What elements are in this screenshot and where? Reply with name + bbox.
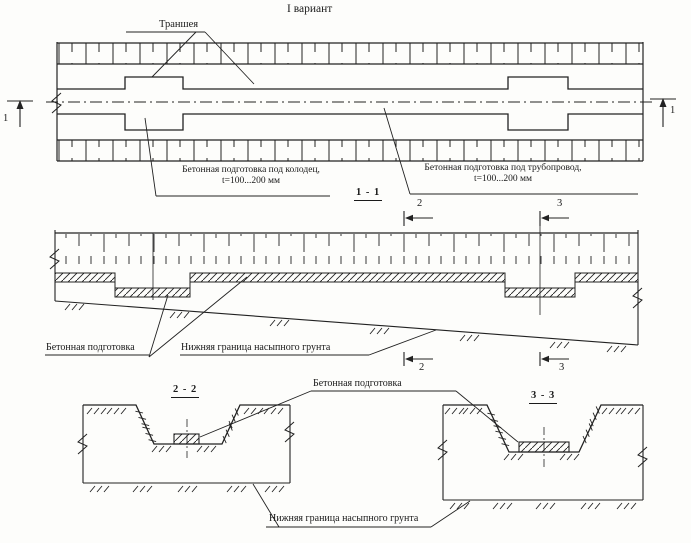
plan-bottom-bank-ticks (57, 140, 643, 161)
concrete-strip-well (115, 288, 190, 297)
section-1-1-title: 1 - 1 (354, 187, 382, 201)
cut-marker-3-top (540, 211, 569, 226)
section-3-3-title: 3 - 3 (529, 390, 557, 404)
arrow-left-icon (405, 215, 413, 221)
concrete-prep-label-bottom: Бетонная подготовка (313, 378, 402, 389)
drawing-page: I вариант Траншея Бетонная подготовка по… (0, 0, 691, 543)
drawing-linework (0, 0, 691, 543)
cut-number-3-bottom: 3 (559, 362, 564, 374)
cut-number-2-top: 2 (417, 198, 422, 210)
concrete-prep-label-mid: Бетонная подготовка (46, 342, 135, 353)
cut-marker-1-left (7, 100, 33, 127)
section-3-3 (438, 405, 647, 509)
trench-label: Траншея (159, 19, 198, 31)
cut-marker-2-top (404, 211, 433, 226)
pipe-prep-label-line1: Бетонная подготовка под трубопровод, (410, 163, 596, 174)
arrow-left-icon (541, 215, 549, 221)
cut-number-1-right: 1 (670, 105, 675, 117)
fill-boundary-label-bottom: Нижняя граница насыпного грунта (269, 513, 418, 524)
section-2-2-title: 2 - 2 (171, 384, 199, 398)
concrete-strip (190, 273, 505, 282)
pipe-prep-label-line2: t=100...200 мм (410, 174, 596, 185)
plan-top-bank-ticks (57, 43, 643, 64)
bottom-callouts (200, 391, 518, 527)
fill-boundary-line (55, 301, 638, 345)
trench-lower-edge (57, 114, 643, 130)
cut-number-2-bottom: 2 (419, 362, 424, 374)
fill-soil-ticks (56, 234, 636, 264)
pipe-prep-label: Бетонная подготовка под трубопровод, t=1… (410, 163, 596, 184)
arrow-left-icon (405, 356, 413, 362)
concrete-strip (55, 273, 115, 282)
trench-upper-edge (57, 77, 643, 89)
concrete-strip (575, 273, 638, 282)
cut-number-3-top: 3 (557, 198, 562, 210)
concrete-pad-pipe (174, 434, 199, 444)
section-2-2 (78, 405, 294, 492)
well-prep-label: Бетонная подготовка под колодец, t=100..… (168, 165, 334, 186)
page-title: I вариант (287, 3, 332, 16)
concrete-prep-bottom-leader (200, 391, 518, 442)
fill-boundary-label-mid: Нижняя граница насыпного грунта (181, 342, 330, 353)
well-prep-label-line1: Бетонная подготовка под колодец, (168, 165, 334, 176)
well-prep-label-line2: t=100...200 мм (168, 176, 334, 187)
cut-marker-3-bottom (540, 352, 569, 366)
arrow-left-icon (541, 356, 549, 362)
cut-number-1-left: 1 (3, 113, 8, 125)
